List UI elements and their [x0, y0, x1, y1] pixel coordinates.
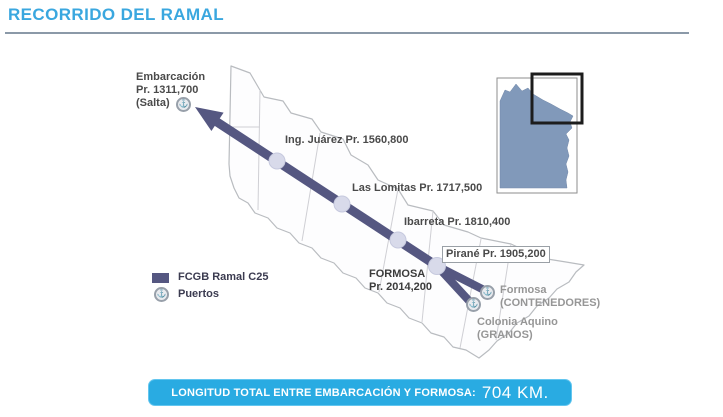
label-formosa: FORMOSA Pr. 2014,200: [369, 268, 432, 294]
label-embarcacion-pr: Pr. 1311,700: [136, 84, 205, 97]
legend-line-swatch: [152, 273, 169, 283]
port-icon-granos: ⚓: [466, 297, 481, 312]
legend-ports-label: Puertos: [178, 288, 219, 300]
slide: RECORRIDO DEL RAMAL: [0, 0, 723, 417]
label-embarcacion-name: Embarcación: [136, 71, 205, 84]
label-ibarreta: Ibarreta Pr. 1810,400: [404, 216, 510, 229]
station-dot-ing-juarez: [269, 153, 285, 169]
label-port-granos-name: Colonia Aquino: [477, 316, 558, 329]
label-pirane: Pirané Pr. 1905,200: [442, 246, 550, 263]
port-icon-embarcacion: ⚓: [176, 97, 191, 112]
label-formosa-pr: Pr. 2014,200: [369, 281, 432, 294]
port-icon-contenedores: ⚓: [480, 285, 495, 300]
label-embarcacion: Embarcación Pr. 1311,700 (Salta): [136, 71, 205, 110]
banner-label: LONGITUD TOTAL ENTRE EMBARCACIÓN Y FORMO…: [171, 387, 476, 399]
formosa-route-map: [0, 0, 723, 417]
label-port-contenedores: Formosa (CONTENEDORES): [500, 284, 600, 310]
label-port-contenedores-type: (CONTENEDORES): [500, 297, 600, 310]
label-ing-juarez: Ing. Juárez Pr. 1560,800: [285, 134, 409, 147]
total-length-banner: LONGITUD TOTAL ENTRE EMBARCACIÓN Y FORMO…: [148, 379, 572, 406]
label-port-granos-type: (GRANOS): [477, 329, 558, 342]
banner-value: 704 KM.: [482, 383, 549, 403]
legend-port-icon: ⚓: [154, 287, 169, 302]
label-formosa-name: FORMOSA: [369, 268, 432, 281]
label-port-granos: Colonia Aquino (GRANOS): [477, 316, 558, 342]
legend-line-label: FCGB Ramal C25: [178, 271, 268, 283]
label-embarcacion-province: (Salta): [136, 97, 205, 110]
station-dot-las-lomitas: [334, 196, 350, 212]
label-las-lomitas: Las Lomitas Pr. 1717,500: [352, 182, 482, 195]
label-port-contenedores-name: Formosa: [500, 284, 600, 297]
station-dot-ibarreta: [390, 232, 406, 248]
inset-map: [497, 74, 582, 193]
